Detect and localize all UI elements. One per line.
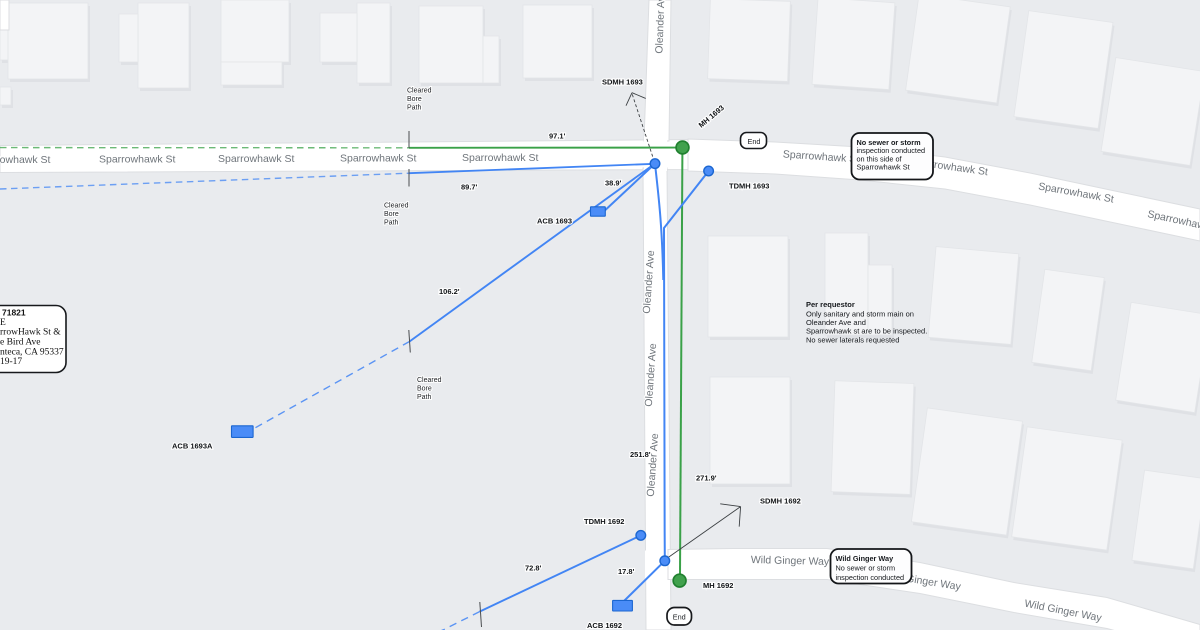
svg-text:Wild Ginger Way: Wild Ginger Way [836,554,895,563]
svg-text:End: End [673,613,686,622]
svg-text:Oleander Ave: Oleander Ave [653,0,667,54]
svg-text:Bore: Bore [384,211,399,218]
svg-text:17.8': 17.8' [618,567,635,576]
svg-text:Sparrowhawk St: Sparrowhawk St [218,153,295,165]
svg-text:Sparrowhawk St: Sparrowhawk St [462,152,539,164]
svg-text:SDMH 1693: SDMH 1693 [602,78,643,87]
svg-text:ACB 1692: ACB 1692 [587,621,622,630]
svg-text:Cleared: Cleared [417,377,442,384]
svg-text:Only sanitary and storm main o: Only sanitary and storm main on [806,309,914,318]
svg-text:Path: Path [417,394,432,401]
svg-text:38.9': 38.9' [605,179,622,188]
svg-text:No sewer laterals requested: No sewer laterals requested [806,335,899,344]
svg-text:Path: Path [384,220,399,227]
svg-text:No sewer or storm: No sewer or storm [836,564,896,573]
svg-text:Wild Ginger Way: Wild Ginger Way [751,554,830,568]
svg-text:251.8': 251.8' [630,450,651,459]
svg-text:Sparrowhawk St: Sparrowhawk St [340,153,417,165]
svg-text:89.7': 89.7' [461,183,478,192]
svg-text:ACB 1693A: ACB 1693A [172,442,213,451]
svg-text:Bore: Bore [417,386,432,393]
svg-text:TDMH 1693: TDMH 1693 [729,182,769,191]
svg-text:106.2': 106.2' [439,287,460,296]
svg-text:nteca, CA 95337: nteca, CA 95337 [0,348,64,358]
svg-text:e Bird Ave: e Bird Ave [0,338,40,348]
svg-text:Sparrowhawk st are to be inspe: Sparrowhawk st are to be inspected. [806,327,927,336]
svg-text:Sparrowhawk St: Sparrowhawk St [857,163,910,172]
svg-text:ACB 1693: ACB 1693 [537,217,572,226]
svg-text:inspection conducted: inspection conducted [836,573,905,582]
svg-text:Oleander Ave and: Oleander Ave and [806,318,866,327]
svg-text:MH 1692: MH 1692 [703,581,733,590]
svg-text:72.8': 72.8' [525,564,542,573]
svg-text:SDMH 1692: SDMH 1692 [760,497,801,506]
svg-text:E: E [0,318,6,328]
svg-text:271.9': 271.9' [696,474,717,483]
svg-text:71821: 71821 [2,308,26,318]
svg-text:Path: Path [407,105,422,112]
svg-text:Sparrowhawk St: Sparrowhawk St [99,154,176,166]
svg-text:Cleared: Cleared [407,88,432,95]
svg-text:rrowHawk St &: rrowHawk St & [0,328,61,338]
svg-text:End: End [748,137,761,146]
svg-text:Bore: Bore [407,96,422,103]
svg-text:Per requestor: Per requestor [806,300,855,309]
svg-text:19-17: 19-17 [0,357,22,367]
svg-text:Cleared: Cleared [384,203,409,210]
svg-text:97.1': 97.1' [549,132,566,141]
svg-text:Sparrowhawk St: Sparrowhawk St [0,154,51,166]
svg-text:TDMH 1692: TDMH 1692 [584,517,624,526]
